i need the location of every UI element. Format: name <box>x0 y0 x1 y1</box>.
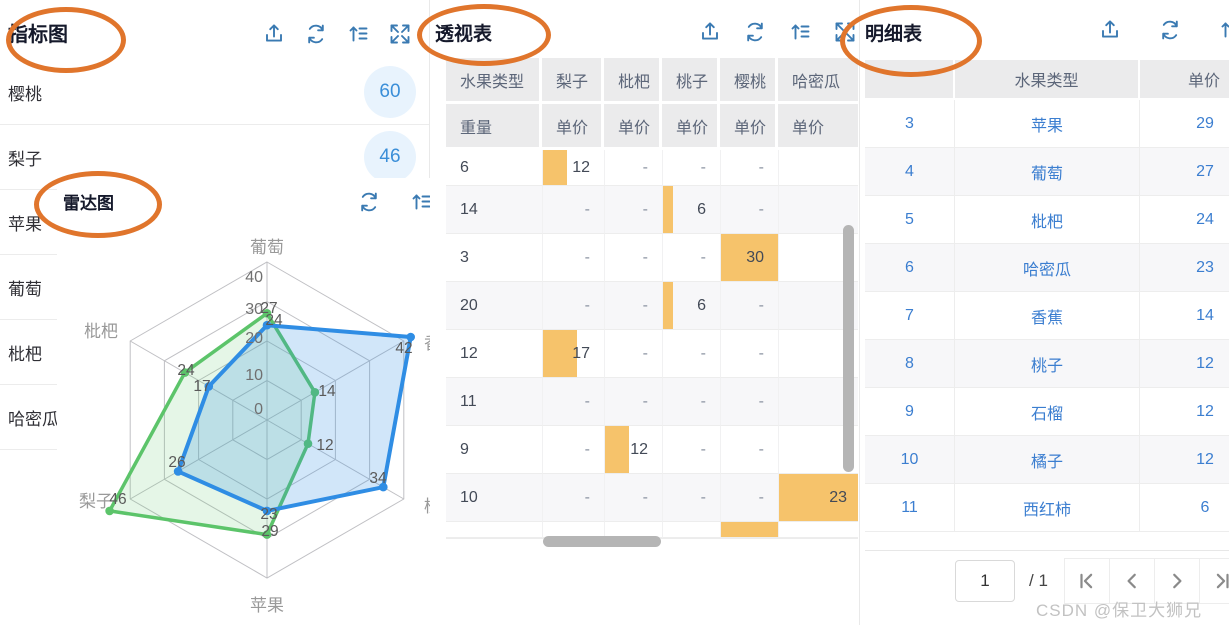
watermark: CSDN @保卫大狮兄 <box>1036 596 1202 621</box>
data-bar <box>721 522 778 537</box>
pivot-value-cell: - <box>604 234 662 282</box>
pivot-value-cell: 12 <box>542 150 604 186</box>
list-item-label: 枇杷 <box>8 340 42 365</box>
page-number-input[interactable] <box>955 560 1015 602</box>
upload-icon[interactable] <box>262 22 286 46</box>
detail-row[interactable]: 8桃子12 <box>865 340 1229 388</box>
detail-header-cell[interactable]: 水果类型 <box>955 60 1138 98</box>
svg-text:27: 27 <box>260 300 277 317</box>
svg-text:14: 14 <box>318 383 336 400</box>
pivot-value-cell: 12 <box>604 426 662 474</box>
svg-text:17: 17 <box>193 378 210 395</box>
vertical-scrollbar[interactable] <box>843 225 854 472</box>
radar-card: 雷达图 葡萄香蕉桃子苹果梨子枇杷010203040244234232617271… <box>57 178 430 625</box>
pivot-value-cell <box>720 522 778 538</box>
pivot-value-cell: - <box>720 282 778 330</box>
pivot-cell-value: 23 <box>829 474 847 521</box>
pivot-row[interactable]: 11---- <box>446 378 858 426</box>
detail-panel: 明细表 水果类型单价3苹果294葡萄275枇杷246哈密瓜237香蕉148桃子1… <box>860 0 1229 625</box>
pivot-table: 水果类型梨子枇杷桃子樱桃哈密瓜重量单价单价单价单价单价612---14--6-3… <box>446 58 858 539</box>
pivot-value-cell: - <box>662 426 720 474</box>
detail-cell: 哈密瓜 <box>955 244 1140 292</box>
detail-header-cell[interactable] <box>865 60 953 98</box>
pivot-header-cell[interactable]: 单价 <box>604 104 659 147</box>
detail-cell: 12 <box>1140 340 1229 388</box>
pivot-value-cell: - <box>604 378 662 426</box>
pivot-cell-value: - <box>585 426 590 473</box>
pivot-cell-value: 12 <box>572 150 590 185</box>
list-item[interactable]: 樱桃60 <box>0 60 430 125</box>
detail-panel-title: 明细表 <box>865 19 922 46</box>
sort-icon[interactable] <box>346 22 370 46</box>
svg-text:40: 40 <box>245 269 263 286</box>
sort-icon[interactable] <box>788 20 812 44</box>
detail-row[interactable]: 9石榴12 <box>865 388 1229 436</box>
detail-row[interactable]: 11西红柿6 <box>865 484 1229 532</box>
pivot-cell-value: 30 <box>746 234 764 281</box>
pivot-header-row: 水果类型梨子枇杷桃子樱桃哈密瓜 <box>446 58 858 104</box>
data-bar <box>663 186 673 233</box>
svg-text:42: 42 <box>395 340 412 357</box>
pivot-value-cell: 23 <box>778 474 858 522</box>
pivot-value-cell: 6 <box>662 186 720 234</box>
pivot-cell-value: - <box>701 426 706 473</box>
pivot-weight-cell: 9 <box>446 426 542 474</box>
detail-toolbar <box>1098 18 1229 42</box>
pivot-value-cell: - <box>720 330 778 378</box>
sort-icon[interactable] <box>1218 18 1229 42</box>
sort-icon[interactable] <box>409 190 430 214</box>
pivot-header-cell[interactable]: 梨子 <box>542 58 601 101</box>
pivot-value-cell: - <box>542 474 604 522</box>
detail-cell: 3 <box>865 100 955 148</box>
pivot-value-cell: - <box>662 150 720 186</box>
pivot-header-cell[interactable]: 单价 <box>720 104 775 147</box>
pivot-header-cell[interactable]: 水果类型 <box>446 58 539 101</box>
pivot-cell-value: 6 <box>697 282 706 329</box>
detail-cell: 14 <box>1140 292 1229 340</box>
pivot-row[interactable]: 9-12-- <box>446 426 858 474</box>
svg-text:0: 0 <box>254 401 263 418</box>
detail-cell: 橘子 <box>955 436 1140 484</box>
pivot-value-cell: - <box>604 330 662 378</box>
pivot-row[interactable]: 10----23 <box>446 474 858 522</box>
pivot-value-cell: 6 <box>662 282 720 330</box>
pivot-row[interactable]: 20--6- <box>446 282 858 330</box>
pivot-value-cell: - <box>720 150 778 186</box>
detail-cell: 6 <box>865 244 955 292</box>
svg-text:香蕉: 香蕉 <box>424 334 430 353</box>
detail-cell: 24 <box>1140 196 1229 244</box>
detail-table: 水果类型单价3苹果294葡萄275枇杷246哈密瓜237香蕉148桃子129石榴… <box>865 60 1229 532</box>
detail-cell: 5 <box>865 196 955 244</box>
list-item-label: 苹果 <box>8 210 42 235</box>
pivot-value-cell: - <box>720 186 778 234</box>
data-bar <box>663 282 673 329</box>
detail-row[interactable]: 3苹果29 <box>865 100 1229 148</box>
pivot-weight-cell: 3 <box>446 234 542 282</box>
expand-icon[interactable] <box>833 20 857 44</box>
svg-text:24: 24 <box>177 362 195 379</box>
pivot-header-row: 重量单价单价单价单价单价 <box>446 104 858 150</box>
radar-chart[interactable]: 葡萄香蕉桃子苹果梨子枇杷0102030402442342326172714122… <box>60 215 430 625</box>
detail-cell: 23 <box>1140 244 1229 292</box>
radar-card-title: 雷达图 <box>63 189 114 214</box>
detail-cell: 香蕉 <box>955 292 1140 340</box>
svg-text:梨子: 梨子 <box>79 492 113 511</box>
pivot-header-cell[interactable]: 单价 <box>662 104 717 147</box>
pivot-cell-value: 6 <box>697 186 706 233</box>
pivot-cell-value: 12 <box>630 426 648 473</box>
upload-icon[interactable] <box>1098 18 1122 42</box>
pivot-value-cell: - <box>604 474 662 522</box>
list-item-label: 樱桃 <box>8 80 42 105</box>
svg-text:10: 10 <box>245 367 263 384</box>
pivot-cell-value: - <box>701 234 706 281</box>
data-bar <box>605 426 629 473</box>
list-item-label: 哈密瓜 <box>8 405 59 430</box>
detail-cell: 12 <box>1140 388 1229 436</box>
pivot-panel: 透视表 水果类型梨子枇杷桃子樱桃哈密瓜重量单价单价单价单价单价612---14-… <box>430 0 860 625</box>
detail-cell: 6 <box>1140 484 1229 532</box>
pivot-cell-value: - <box>759 150 764 185</box>
detail-row[interactable]: 4葡萄27 <box>865 148 1229 196</box>
pivot-cell-value: - <box>643 150 648 185</box>
detail-cell: 石榴 <box>955 388 1140 436</box>
pivot-cell-value: - <box>701 474 706 521</box>
pivot-value-cell: - <box>542 186 604 234</box>
pivot-cell-value: 17 <box>572 330 590 377</box>
pivot-panel-title: 透视表 <box>435 19 492 46</box>
pivot-weight-cell: 14 <box>446 186 542 234</box>
pivot-cell-value: - <box>701 378 706 425</box>
detail-cell: 西红柿 <box>955 484 1140 532</box>
pivot-header-cell[interactable]: 重量 <box>446 104 539 147</box>
list-item-label: 葡萄 <box>8 275 42 300</box>
pivot-weight-cell: 10 <box>446 474 542 522</box>
pivot-cell-value: - <box>643 330 648 377</box>
pivot-weight-cell: 20 <box>446 282 542 330</box>
pivot-value-cell: - <box>662 378 720 426</box>
svg-text:29: 29 <box>261 523 278 540</box>
expand-icon[interactable] <box>388 22 412 46</box>
pivot-cell-value: - <box>759 378 764 425</box>
pivot-cell-value: - <box>759 186 764 233</box>
detail-cell: 苹果 <box>955 100 1140 148</box>
pivot-cell-value: - <box>643 282 648 329</box>
detail-header-cell[interactable]: 单价 <box>1140 60 1229 98</box>
pivot-value-cell: - <box>662 474 720 522</box>
pivot-cell-value: - <box>585 474 590 521</box>
pivot-value-cell <box>778 150 858 186</box>
pivot-cell-value: - <box>643 234 648 281</box>
svg-text:葡萄: 葡萄 <box>250 238 284 257</box>
detail-row[interactable]: 5枇杷24 <box>865 196 1229 244</box>
value-badge: 60 <box>364 66 416 118</box>
pivot-cell-value: - <box>701 330 706 377</box>
pivot-cell-value: - <box>643 474 648 521</box>
pivot-value-cell: - <box>662 234 720 282</box>
list-item-label: 梨子 <box>8 145 42 170</box>
pivot-weight-cell: 11 <box>446 378 542 426</box>
pivot-value-cell: - <box>542 234 604 282</box>
pivot-value-cell <box>778 522 858 538</box>
pivot-header-cell[interactable]: 哈密瓜 <box>778 58 858 101</box>
detail-cell: 葡萄 <box>955 148 1140 196</box>
svg-text:20: 20 <box>245 330 263 347</box>
pivot-cell-value: - <box>585 378 590 425</box>
pivot-value-cell: - <box>662 330 720 378</box>
page-last-button[interactable] <box>1200 558 1229 604</box>
pivot-row[interactable]: 612--- <box>446 150 858 186</box>
pivot-value-cell <box>662 522 720 538</box>
detail-cell: 8 <box>865 340 955 388</box>
detail-row[interactable]: 10橘子12 <box>865 436 1229 484</box>
pivot-header-cell[interactable]: 单价 <box>778 104 858 147</box>
value-badge: 46 <box>364 131 416 183</box>
pivot-cell-value: - <box>585 282 590 329</box>
pivot-cell-value: - <box>759 330 764 377</box>
pivot-value-cell: - <box>542 282 604 330</box>
detail-cell: 12 <box>1140 436 1229 484</box>
detail-cell: 枇杷 <box>955 196 1140 244</box>
pivot-weight-cell: 6 <box>446 150 542 186</box>
pivot-cell-value: - <box>643 378 648 425</box>
pivot-row[interactable]: 1217--- <box>446 330 858 378</box>
detail-row[interactable]: 6哈密瓜23 <box>865 244 1229 292</box>
refresh-icon[interactable] <box>1158 18 1182 42</box>
pivot-cell-value: - <box>585 186 590 233</box>
svg-text:桃子: 桃子 <box>424 497 430 516</box>
detail-row[interactable]: 7香蕉14 <box>865 292 1229 340</box>
svg-text:苹果: 苹果 <box>250 596 284 615</box>
radar-toolbar <box>357 190 430 214</box>
pivot-value-cell: - <box>542 378 604 426</box>
pivot-cell-value: - <box>643 186 648 233</box>
pivot-row[interactable]: 14--6- <box>446 186 858 234</box>
svg-text:12: 12 <box>316 437 333 454</box>
indicator-panel-title: 指标图 <box>8 18 68 47</box>
pivot-value-cell: - <box>720 378 778 426</box>
pivot-value-cell: - <box>720 474 778 522</box>
detail-cell: 7 <box>865 292 955 340</box>
panel-divider <box>859 0 860 625</box>
pivot-header-cell[interactable]: 枇杷 <box>604 58 659 101</box>
svg-text:枇杷: 枇杷 <box>84 322 118 341</box>
detail-cell: 11 <box>865 484 955 532</box>
upload-icon[interactable] <box>698 20 722 44</box>
svg-text:46: 46 <box>109 491 126 508</box>
data-bar <box>543 150 567 185</box>
detail-cell: 桃子 <box>955 340 1140 388</box>
pivot-weight-cell <box>446 522 542 538</box>
refresh-icon[interactable] <box>304 22 328 46</box>
pivot-row[interactable]: 3---30 <box>446 234 858 282</box>
pivot-cell-value: - <box>585 234 590 281</box>
svg-text:26: 26 <box>168 454 185 471</box>
horizontal-scrollbar[interactable] <box>543 536 661 547</box>
pivot-cell-value: - <box>759 474 764 521</box>
pivot-value-cell: 17 <box>542 330 604 378</box>
pivot-header-cell[interactable]: 单价 <box>542 104 601 147</box>
pivot-weight-cell: 12 <box>446 330 542 378</box>
detail-empty-row <box>865 550 1229 551</box>
pivot-value-cell: - <box>604 186 662 234</box>
pivot-value-cell: 30 <box>720 234 778 282</box>
svg-text:34: 34 <box>369 470 387 487</box>
detail-cell: 9 <box>865 388 955 436</box>
pivot-value-cell: - <box>542 426 604 474</box>
indicator-toolbar <box>262 22 412 46</box>
pivot-header-cell[interactable]: 桃子 <box>662 58 717 101</box>
detail-cell: 4 <box>865 148 955 196</box>
pivot-value-cell: - <box>720 426 778 474</box>
detail-cell: 10 <box>865 436 955 484</box>
pivot-value-cell: - <box>604 150 662 186</box>
pivot-cell-value: - <box>759 426 764 473</box>
detail-cell: 27 <box>1140 148 1229 196</box>
refresh-icon[interactable] <box>743 20 767 44</box>
svg-text:23: 23 <box>260 506 277 523</box>
pivot-toolbar <box>698 20 857 44</box>
pivot-value-cell: - <box>604 282 662 330</box>
refresh-icon[interactable] <box>357 190 381 214</box>
pivot-cell-value: - <box>701 150 706 185</box>
detail-cell: 29 <box>1140 100 1229 148</box>
pivot-cell-value: - <box>759 282 764 329</box>
detail-header-row: 水果类型单价 <box>865 60 1229 100</box>
pivot-header-cell[interactable]: 樱桃 <box>720 58 775 101</box>
page-total-label: / 1 <box>1029 571 1048 591</box>
